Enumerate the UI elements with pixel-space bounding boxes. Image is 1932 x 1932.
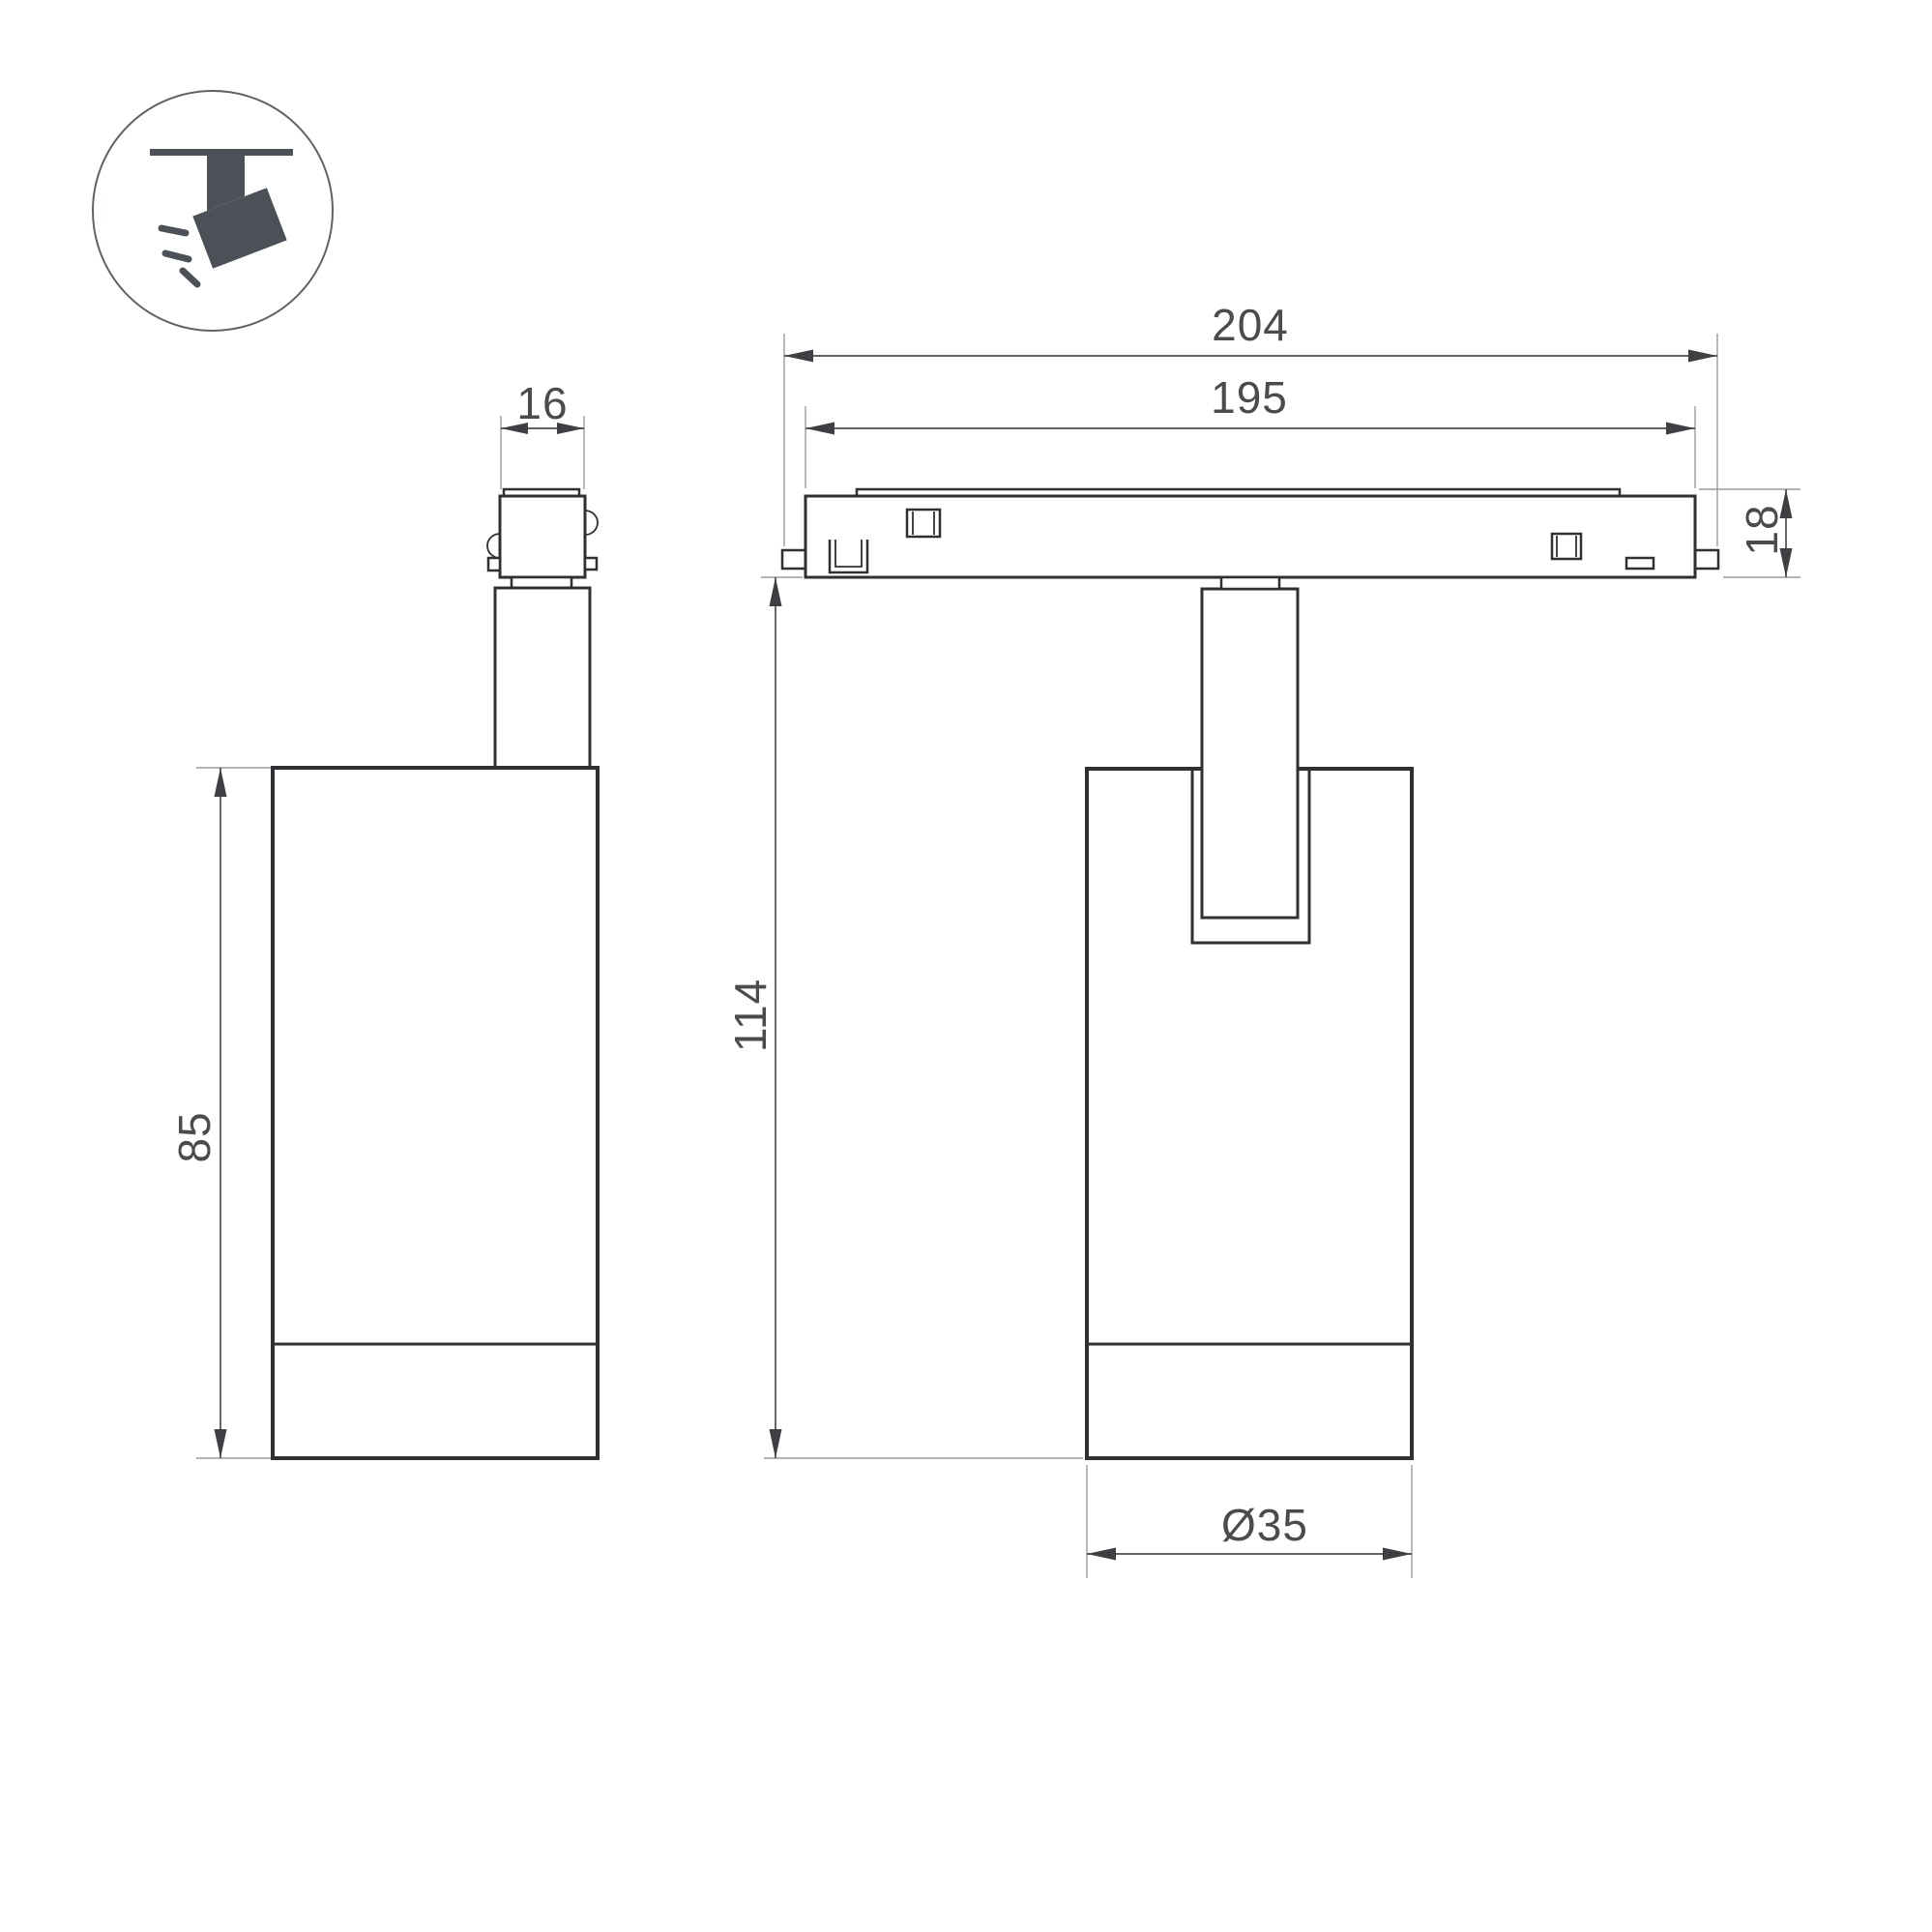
side-stem [495, 588, 590, 768]
side-adapter-right-tab [585, 558, 597, 570]
dim-204-arrow-right [1688, 350, 1717, 363]
dim-85-arrow-bottom [215, 1429, 227, 1458]
dim-195-arrow-left [805, 423, 834, 435]
side-adapter-left-tab [488, 558, 500, 571]
technical-drawing: 16 85 204 195 [0, 0, 1932, 1932]
side-view: 16 85 [169, 378, 598, 1458]
dim-85-arrow-top [215, 768, 227, 797]
dim-204-label: 204 [1212, 300, 1289, 350]
track-end-cap-left [782, 550, 805, 569]
dim-114-label: 114 [725, 979, 776, 1052]
front-stem [1202, 589, 1298, 918]
dim-35-label: Ø35 [1221, 1500, 1308, 1550]
dim-195-arrow-right [1666, 423, 1695, 435]
icon-light-ray-1 [161, 228, 186, 233]
dim-35-arrow-right [1383, 1548, 1412, 1561]
dim-85-label: 85 [169, 1111, 220, 1162]
front-adapter-neck [1221, 577, 1279, 589]
side-adapter-right-latch [585, 511, 598, 535]
side-lamp-body [273, 768, 598, 1458]
side-adapter-neck [512, 577, 571, 588]
dim-195-label: 195 [1211, 372, 1288, 423]
track-slot-detail [1626, 558, 1654, 569]
product-type-icon [93, 91, 333, 331]
dim-114-arrow-top [770, 577, 782, 606]
dim-18-label: 18 [1737, 504, 1787, 555]
track-end-cap-right [1695, 550, 1718, 569]
side-adapter-left-latch [487, 534, 500, 558]
dim-16-label: 16 [516, 378, 568, 428]
dim-114-arrow-bottom [770, 1429, 782, 1458]
front-view: 204 195 18 [725, 300, 1800, 1578]
dim-204-arrow-left [784, 350, 813, 363]
side-adapter-body [500, 496, 585, 577]
dim-35-arrow-left [1087, 1548, 1116, 1561]
